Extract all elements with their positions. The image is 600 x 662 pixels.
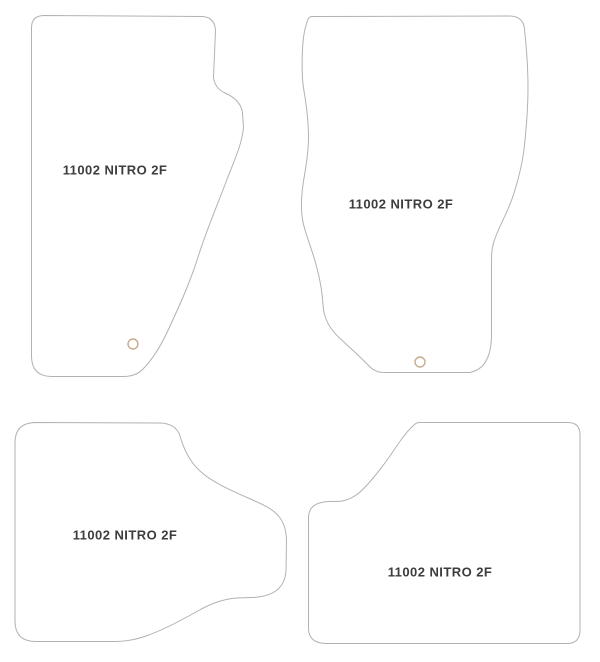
mat-outlines-layer xyxy=(0,0,600,662)
front-left-mat-outline xyxy=(32,16,244,377)
rear-right-mat-outline xyxy=(309,423,581,644)
front-left-mat-label: 11002 NITRO 2F xyxy=(63,163,168,178)
rear-right-mat-label: 11002 NITRO 2F xyxy=(388,565,493,580)
front-right-mat-label: 11002 NITRO 2F xyxy=(349,197,454,212)
floor-mat-pattern-diagram: 11002 NITRO 2F 11002 NITRO 2F 11002 NITR… xyxy=(0,0,600,662)
front-right-mat-outline xyxy=(301,16,528,373)
rear-left-mat-label: 11002 NITRO 2F xyxy=(73,528,178,543)
